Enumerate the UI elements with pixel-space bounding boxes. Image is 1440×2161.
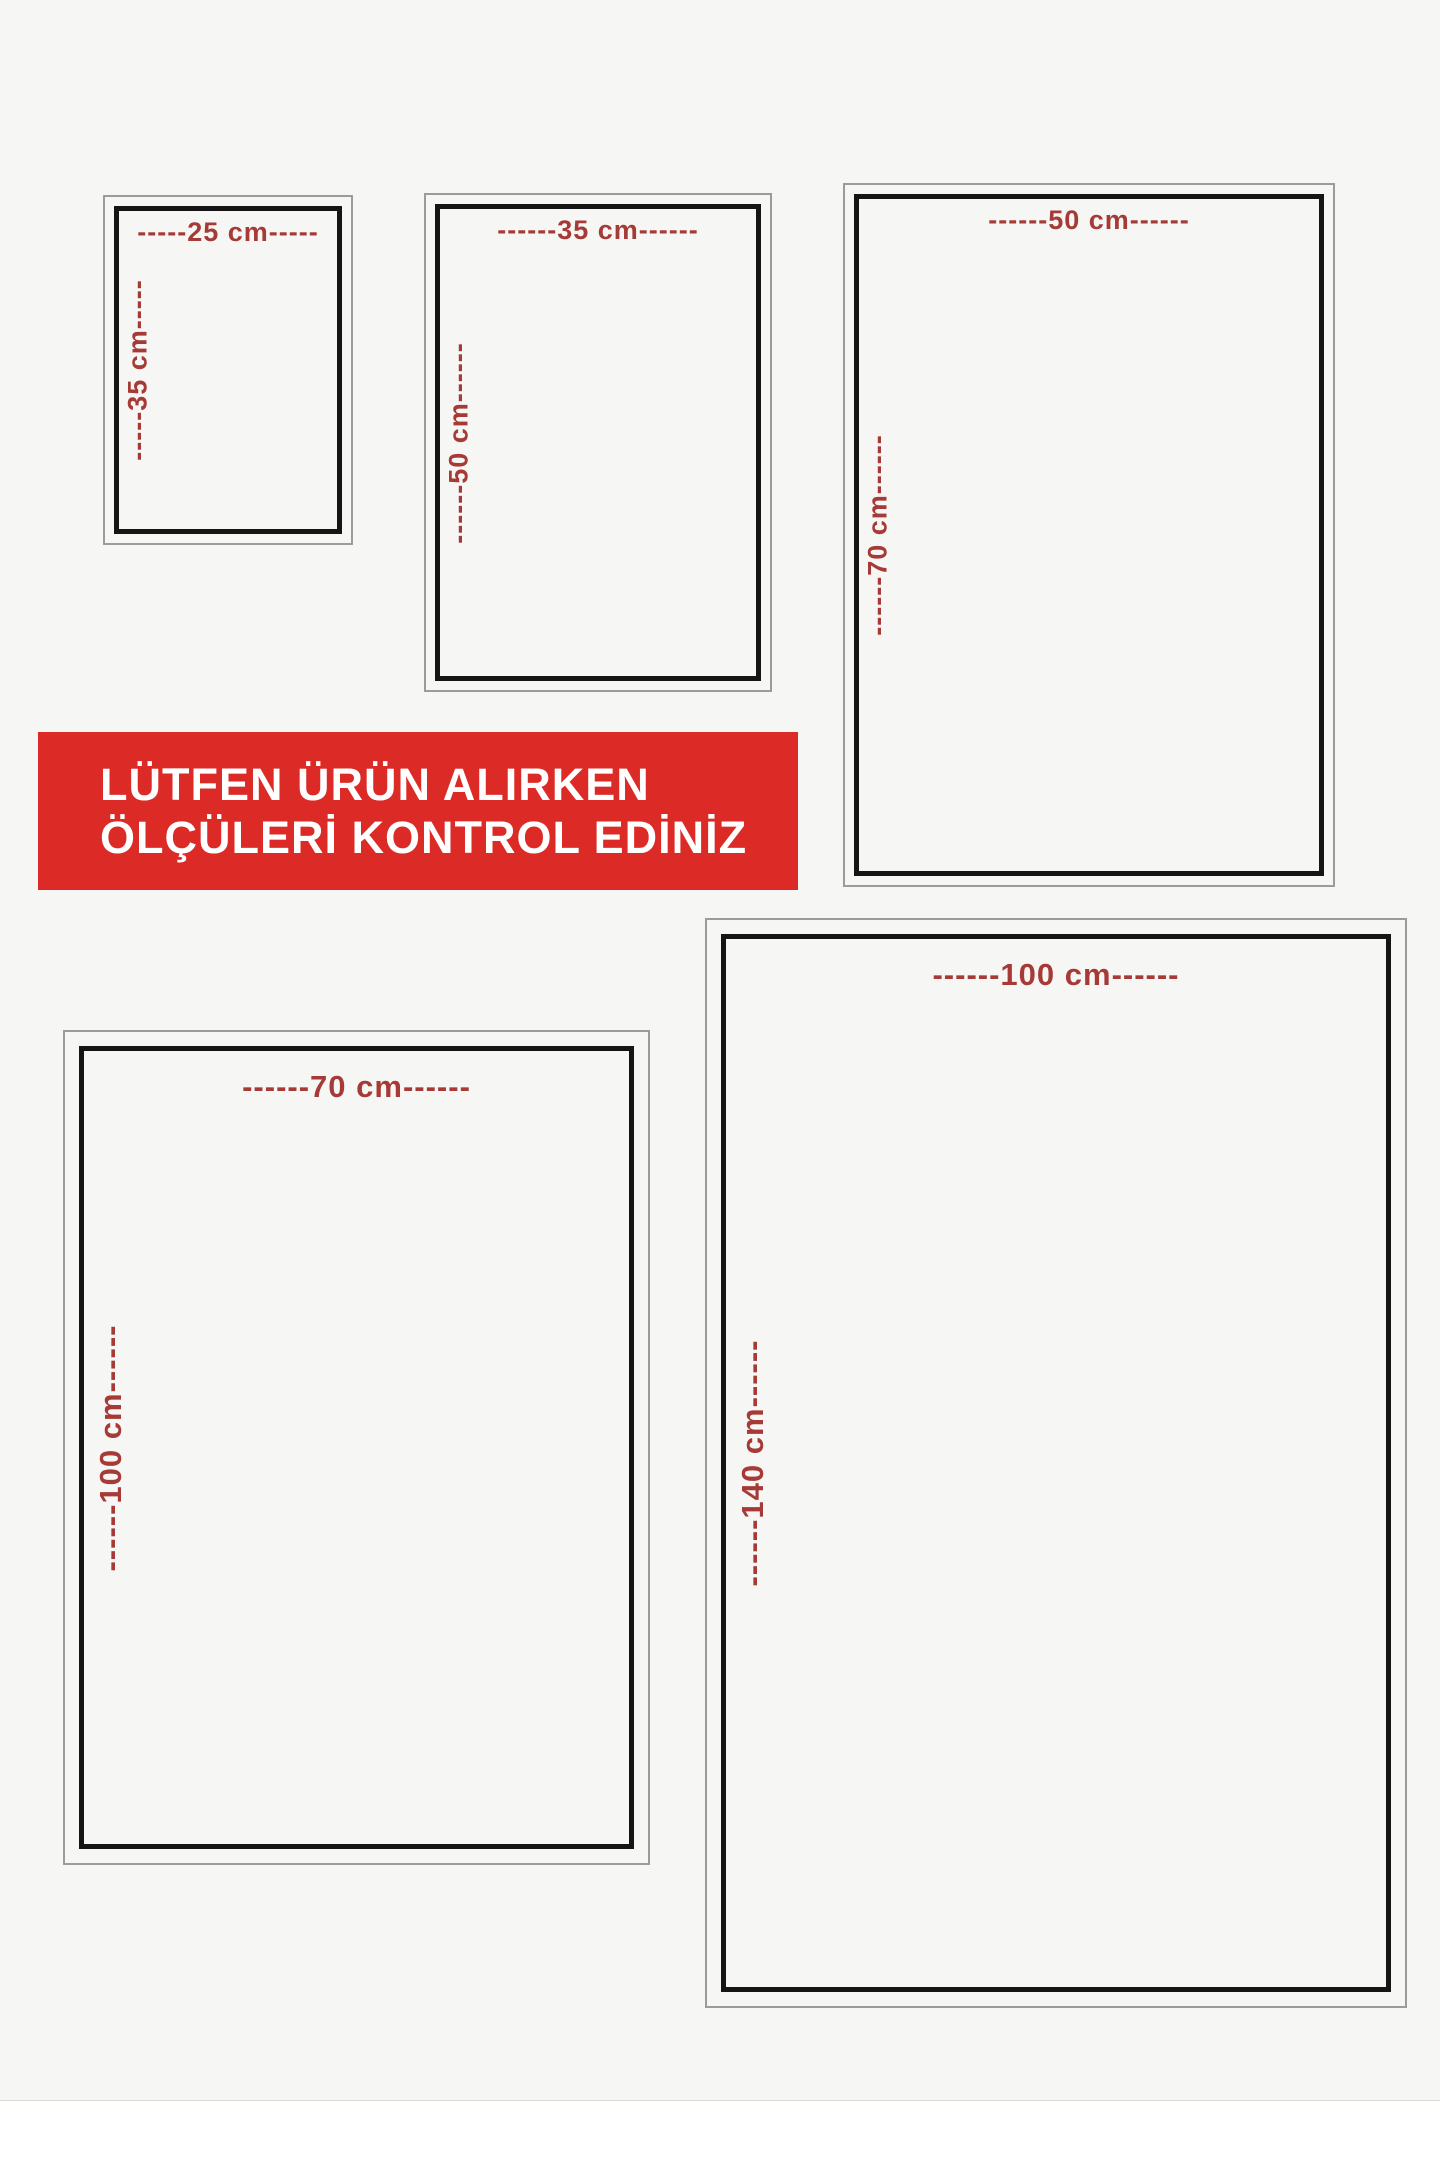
width-label-70cm: ------70 cm------	[84, 1069, 629, 1105]
height-label-100cm: ------100 cm------	[93, 1324, 129, 1571]
warning-banner-line1: LÜTFEN ÜRÜN ALIRKEN	[100, 758, 798, 811]
size-box-50x70: ------50 cm------ ------70 cm------	[843, 183, 1335, 887]
page-bottom-margin	[0, 2100, 1440, 2161]
warning-banner: LÜTFEN ÜRÜN ALIRKEN ÖLÇÜLERİ KONTROL EDİ…	[38, 732, 798, 890]
size-box-100x140-frame: ------100 cm------ ------140 cm------	[721, 934, 1391, 1992]
height-label-140cm: ------140 cm------	[735, 1339, 771, 1586]
width-label-25cm: -----25 cm-----	[119, 217, 337, 248]
warning-banner-line2: ÖLÇÜLERİ KONTROL EDİNİZ	[100, 811, 798, 864]
size-box-35x50-frame: ------35 cm------ ------50 cm------	[435, 204, 761, 681]
size-box-70x100-frame: ------70 cm------ ------100 cm------	[79, 1046, 634, 1849]
width-label-35cm: ------35 cm------	[440, 215, 756, 246]
width-label-50cm: ------50 cm------	[859, 205, 1319, 236]
size-box-35x50: ------35 cm------ ------50 cm------	[424, 193, 772, 692]
size-box-70x100: ------70 cm------ ------100 cm------	[63, 1030, 650, 1865]
size-guide-sheet: -----25 cm----- -----35 cm----- ------35…	[0, 0, 1440, 2100]
size-box-25x35-frame: -----25 cm----- -----35 cm-----	[114, 206, 342, 534]
size-box-25x35: -----25 cm----- -----35 cm-----	[103, 195, 353, 545]
height-label-70cm: ------70 cm------	[863, 434, 894, 635]
height-label-35cm: -----35 cm-----	[123, 279, 154, 460]
size-box-100x140: ------100 cm------ ------140 cm------	[705, 918, 1407, 2008]
size-box-50x70-frame: ------50 cm------ ------70 cm------	[854, 194, 1324, 876]
width-label-100cm: ------100 cm------	[726, 957, 1386, 993]
height-label-50cm: ------50 cm------	[444, 342, 475, 543]
